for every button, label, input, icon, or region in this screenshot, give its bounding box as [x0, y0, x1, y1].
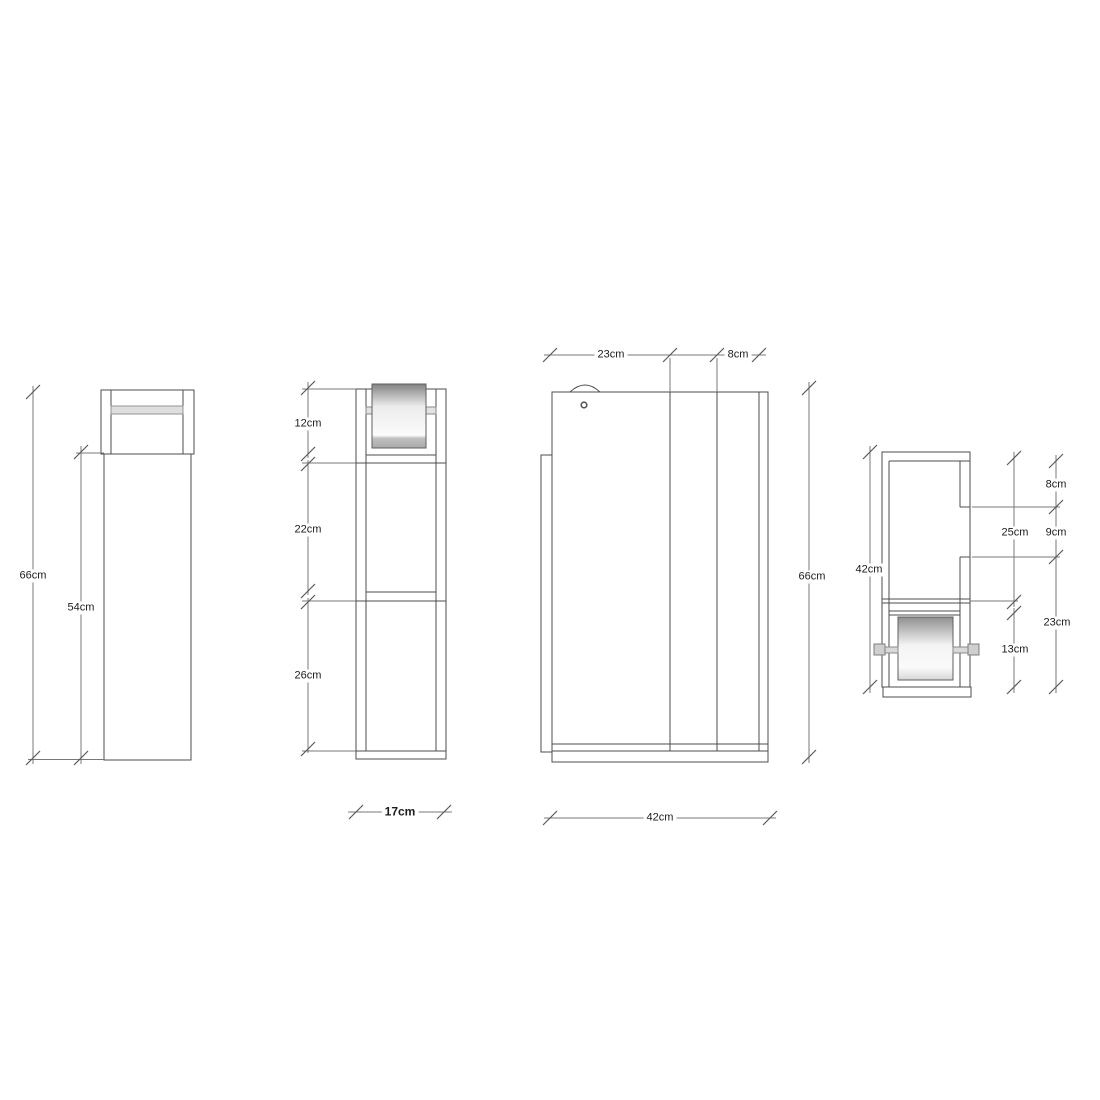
dim-label-17cm: 17cm	[382, 806, 419, 819]
tick-marks	[543, 348, 816, 825]
dim-label-22cm: 22cm	[292, 524, 325, 537]
door-panel	[541, 455, 552, 752]
knob	[581, 402, 587, 408]
roll-holder-bar-back	[111, 406, 183, 414]
dim-label-42cm-depth: 42cm	[644, 812, 677, 825]
side-view-dimensions	[543, 348, 816, 825]
front-view-drawing	[356, 384, 446, 759]
dimension-drawing-canvas: 66cm 54cm 12cm 22cm 26cm 17cm 23cm 8cm 6…	[0, 0, 1100, 1100]
tick-marks	[863, 445, 1063, 694]
dim-label-26cm: 26cm	[292, 670, 325, 683]
dim-label-54cm-back: 54cm	[65, 602, 98, 615]
toilet-roll-side	[898, 617, 953, 680]
dim-label-66cm-back: 66cm	[17, 570, 50, 583]
side-detail-drawing	[874, 452, 979, 697]
dim-label-66cm-side: 66cm	[796, 571, 829, 584]
side-detail-dimensions	[863, 445, 1063, 694]
dim-label-12cm: 12cm	[292, 418, 325, 431]
dim-label-8cm-detail: 8cm	[1043, 479, 1070, 492]
dim-label-23cm-detail: 23cm	[1041, 617, 1074, 630]
back-top-frame	[101, 390, 194, 454]
side-outer-frame	[552, 392, 768, 762]
side-view-drawing	[541, 385, 768, 762]
dim-label-9cm: 9cm	[1043, 527, 1070, 540]
dim-label-42cm-detail: 42cm	[853, 564, 886, 577]
back-body-panel	[104, 454, 191, 760]
back-view-drawing	[101, 390, 194, 760]
detail-plinth	[883, 687, 971, 697]
roll-bar-right-cap	[968, 644, 979, 655]
dim-label-25cm: 25cm	[999, 527, 1032, 540]
dim-label-23cm-depth: 23cm	[595, 349, 628, 362]
roll-bar-left-segment	[885, 647, 898, 653]
dim-label-13cm: 13cm	[999, 644, 1032, 657]
cabinet-technical-drawing	[0, 0, 1100, 1100]
toilet-roll-front	[372, 384, 426, 448]
dim-label-8cm-depth: 8cm	[725, 349, 752, 362]
roll-bar-right-segment	[953, 647, 968, 653]
roll-top-arc	[570, 385, 600, 392]
roll-bar-left-cap	[874, 644, 885, 655]
